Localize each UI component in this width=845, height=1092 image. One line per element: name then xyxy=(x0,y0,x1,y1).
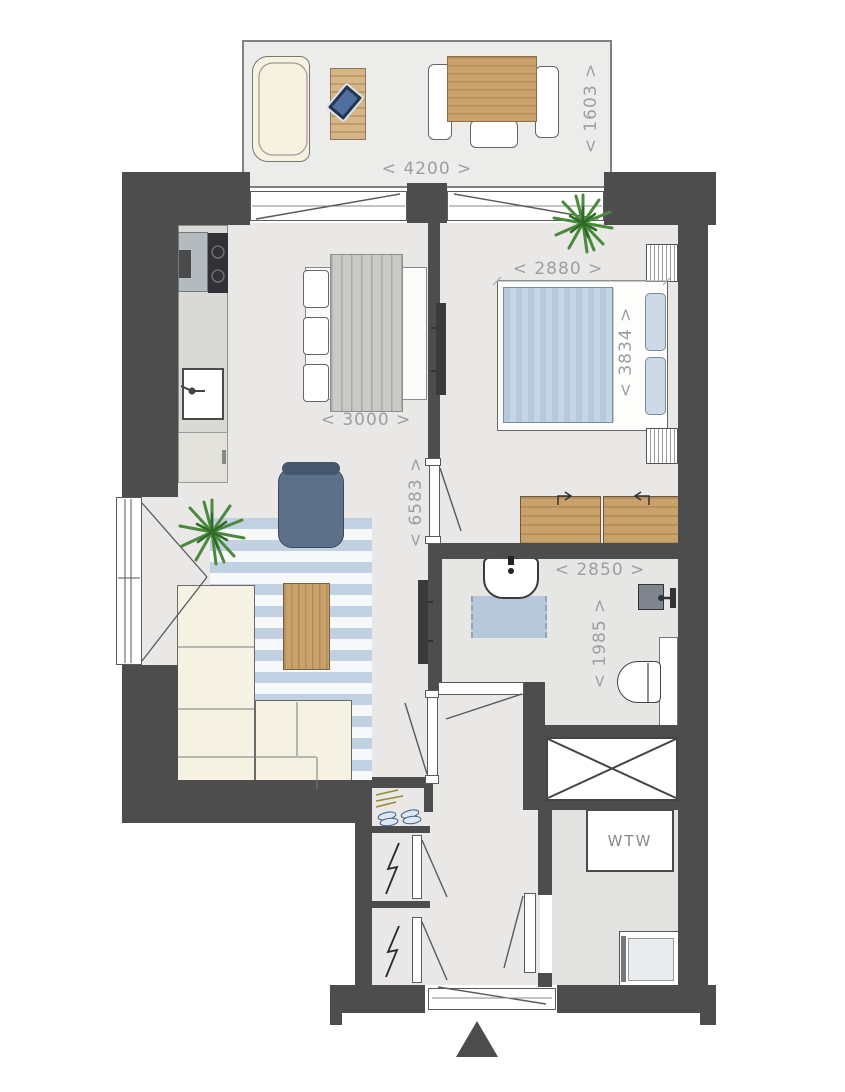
entrance-marker xyxy=(456,1021,498,1057)
lounge-chair xyxy=(252,56,310,162)
wtw-unit: WTW xyxy=(586,809,674,872)
table-runner xyxy=(330,254,403,412)
dim-bathroom-width: < 2850 > xyxy=(545,561,655,579)
balcony-table xyxy=(447,56,537,122)
washing-machine-door-bar xyxy=(621,936,626,982)
bath-mat xyxy=(471,596,547,638)
balcony-chair-bottom xyxy=(470,120,518,148)
living-hall-door xyxy=(427,697,438,777)
wall-right xyxy=(678,225,708,1013)
balcony-chair-right xyxy=(535,66,559,138)
dining-chair-1 xyxy=(303,270,329,308)
tv-living-room xyxy=(418,580,428,664)
wall-top-right xyxy=(604,172,716,225)
wall-cupboard-partition-1 xyxy=(372,826,430,833)
wall-flange-left xyxy=(330,985,342,1025)
toilet-cistern xyxy=(659,637,678,726)
bedroom-door-jamb-bottom xyxy=(425,536,441,544)
dim-living-depth: < 6583 > xyxy=(407,447,425,557)
floor-plan: WTW < 4200 > < 1603 > < 2880 > < 3834 > … xyxy=(0,0,845,1092)
washbasin xyxy=(483,557,539,599)
kitchen-cabinet xyxy=(178,432,228,483)
balcony-door-right xyxy=(447,191,604,221)
tv-bedroom xyxy=(436,303,446,395)
dining-chair-3 xyxy=(303,364,329,402)
wall-flange-right xyxy=(700,985,716,1025)
hall-floor xyxy=(372,780,540,985)
wardrobe-1 xyxy=(520,496,601,548)
pillow-1 xyxy=(645,293,666,351)
cabinet-handle xyxy=(222,450,226,464)
window-living xyxy=(116,497,142,665)
sofa-horizontal-arm xyxy=(255,700,352,790)
radiator-bedroom-1 xyxy=(646,244,678,282)
meter-cupboard-door-2 xyxy=(412,917,422,983)
living-door-jamb-bottom xyxy=(425,775,439,784)
shower-unit xyxy=(638,584,664,610)
wall-bathroom-north xyxy=(428,543,678,559)
toilet-bowl xyxy=(617,661,661,703)
tech-room-door xyxy=(524,893,536,973)
wall-hall-west xyxy=(355,780,372,1013)
sofa-vertical-arm xyxy=(177,585,255,790)
wall-shoe-post xyxy=(424,788,433,812)
wall-left-upper xyxy=(122,172,178,497)
bed-duvet xyxy=(503,287,613,423)
desk-chair-back xyxy=(282,462,340,475)
dining-chair-2 xyxy=(303,317,329,355)
wall-living-south xyxy=(122,780,372,823)
kitchen-appliance-door xyxy=(179,250,191,278)
dim-bedroom-depth: < 3834 > xyxy=(617,297,635,407)
dim-dining-width: < 3000 > xyxy=(311,411,421,429)
bedroom-door xyxy=(429,465,440,538)
window-nook-floor xyxy=(142,497,178,665)
desk-chair xyxy=(278,468,344,548)
wall-bathroom-post xyxy=(523,682,545,730)
pillow-2 xyxy=(645,357,666,415)
wall-shoe-top xyxy=(372,777,433,788)
bathroom-door xyxy=(438,682,524,695)
meter-cupboard-door-1 xyxy=(412,835,422,899)
living-door-jamb-top xyxy=(425,690,439,698)
wardrobe-2 xyxy=(603,496,680,548)
dim-balcony-width: < 4200 > xyxy=(372,160,482,178)
front-door xyxy=(428,988,556,1010)
wall-bottom-right xyxy=(557,985,715,1013)
radiator-bedroom-2 xyxy=(646,428,678,464)
wall-tech-west-a xyxy=(538,810,552,895)
wall-cupboard-partition-2 xyxy=(372,901,430,908)
dim-bedroom-width: < 2880 > xyxy=(503,260,613,278)
balcony-door-left xyxy=(250,191,407,221)
washing-machine-drum xyxy=(628,938,674,981)
wall-bathroom-west xyxy=(428,559,442,695)
wall-pier xyxy=(407,183,447,223)
wall-left-lower xyxy=(122,665,178,785)
dim-bathroom-depth: < 1985 > xyxy=(591,588,609,698)
shaft xyxy=(546,737,678,801)
kitchen-sink xyxy=(182,368,224,420)
wtw-label: WTW xyxy=(608,832,653,850)
cooktop xyxy=(208,233,228,293)
wall-bottom-left xyxy=(340,985,425,1013)
coffee-table xyxy=(283,583,330,670)
dim-balcony-depth: < 1603 > xyxy=(582,53,600,163)
wall-tech-west-b xyxy=(538,973,552,987)
bedroom-door-jamb-top xyxy=(425,458,441,466)
